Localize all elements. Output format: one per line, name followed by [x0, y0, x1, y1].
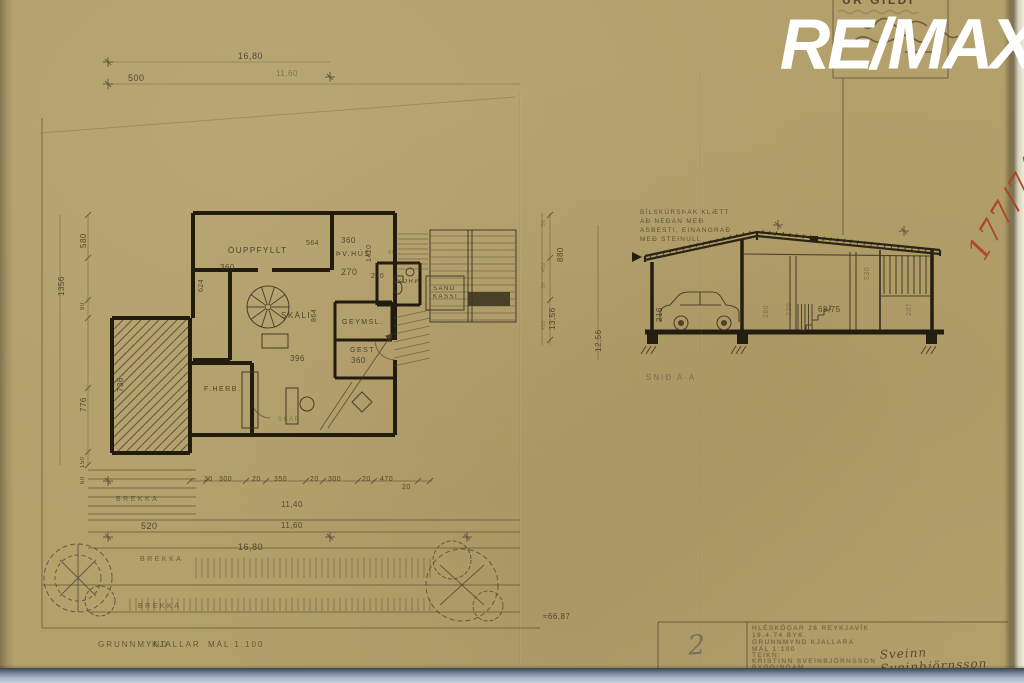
room-ouppfyllt: ÓUPPFYLLT	[228, 247, 288, 255]
section-note-2: AÐ NEÐAN MEÐ	[640, 219, 704, 226]
annotation-label: 1356	[58, 276, 66, 296]
annotation-label: 20	[252, 476, 261, 483]
annotation-label: 11,60	[276, 70, 298, 78]
annotation-label: 300	[328, 476, 341, 483]
sheet-number: 2	[687, 629, 706, 661]
annotation-label: 56	[542, 281, 547, 288]
site-dim-1680-top: 16,80	[238, 52, 263, 61]
annotation-label: 280	[763, 305, 770, 318]
annotation-label: 580	[80, 233, 88, 248]
annotation-label: 20	[402, 484, 411, 491]
section-dim-216: 216	[656, 307, 664, 322]
annotation-label: 360	[341, 237, 356, 245]
paper-fold-line	[700, 70, 702, 670]
annotation-label: 736	[117, 377, 125, 392]
annotation-label: 11,60	[281, 522, 303, 530]
site-dim-500: 500	[128, 74, 145, 83]
annotation-label: 220	[786, 303, 793, 316]
annotation-label: 470	[380, 476, 393, 483]
slope-brekka-2: BREKKA	[140, 556, 183, 563]
annotation-label: 880	[557, 247, 565, 262]
section-note-3: ASBESTI, EINANGRAÐ	[640, 228, 731, 235]
room-thvhus: ÞV.HÚS	[336, 251, 370, 258]
room-fherb: F.HERB.	[204, 386, 241, 393]
site-dim-520: 520	[141, 522, 158, 531]
annotation-label: 207	[906, 303, 913, 316]
section-caption: SNIÐ A-A	[646, 374, 696, 382]
room-gest: GEST	[350, 347, 375, 354]
annotation-label: 90	[388, 250, 396, 256]
annotation-label: SAND	[433, 286, 456, 292]
plan-scale: MÁL 1:100	[208, 641, 264, 649]
annotation-label: SORP	[397, 279, 420, 285]
annotation-label: 360	[351, 357, 366, 365]
annotation-label: KASSI	[433, 294, 458, 300]
annotation-label: 210	[371, 273, 384, 280]
table-background-strip	[0, 668, 1024, 683]
annotation-label: 864	[311, 309, 318, 322]
section-note-1: BÍLSKÚRSÞAK KLÆTT	[640, 210, 730, 217]
annotation-label: 56	[542, 219, 547, 226]
annotation-label: 450	[542, 320, 547, 330]
paper-fold-line	[519, 92, 521, 667]
annotation-label: 11,40	[281, 501, 303, 509]
annotation-label: 300	[219, 476, 232, 483]
annotation-label: 150	[80, 456, 86, 468]
annotation-label: 396	[290, 355, 305, 363]
site-dim-1680-bottom: 16,80	[238, 543, 263, 552]
annotation-label: 270	[341, 268, 358, 277]
section-dim-6875: 68,75	[818, 306, 841, 314]
annotation-label: 13,56	[549, 307, 557, 330]
annotation-label: 20	[362, 476, 371, 483]
annotation-label: 60	[80, 476, 86, 484]
annotation-label: 90	[80, 302, 86, 310]
room-skali: SKÁLI	[281, 312, 311, 320]
annotation-label: 12,56	[595, 329, 603, 352]
annotation-label: 450	[542, 262, 547, 272]
annotation-label: KJALLAR	[152, 641, 201, 649]
paper-left-edge-shadow	[0, 0, 14, 683]
room-geymsl: GEYMSL.	[342, 319, 384, 326]
annotation-label: 776	[80, 397, 88, 412]
annotation-label: 20	[310, 476, 319, 483]
slope-brekka-1: BREKKA	[116, 496, 159, 503]
annotation-label: SKÁP	[278, 417, 300, 423]
annotation-label: 30	[204, 476, 213, 483]
annotation-label: 360	[220, 264, 235, 272]
annotation-label: 350	[274, 476, 287, 483]
slope-brekka-3: BREKKA	[138, 603, 181, 610]
remax-watermark: RE/MAX	[780, 3, 1024, 85]
annotation-label: 530	[864, 267, 871, 280]
annotation-layer: 50016,8011,60ÓUPPFYLLT3606245643601420ÞV…	[0, 0, 1024, 683]
paper-right-edge	[1004, 0, 1024, 683]
section-note-4: MEÐ STEINULL	[640, 237, 702, 244]
annotation-label: ≈66,87	[543, 613, 570, 621]
blueprint-scan: 50016,8011,60ÓUPPFYLLT3606245643601420ÞV…	[0, 0, 1024, 683]
annotation-label: 624	[198, 279, 205, 292]
annotation-label: 564	[306, 240, 319, 247]
